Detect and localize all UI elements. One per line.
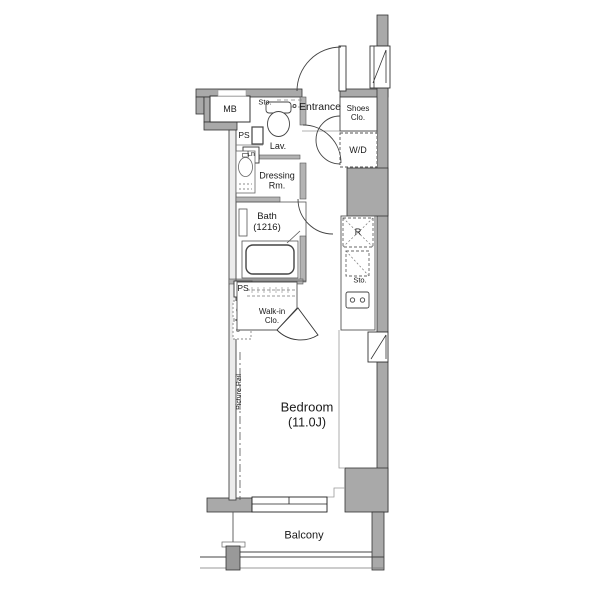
label-ln: Ln (247, 151, 255, 159)
label-sto-top: Sto. (258, 99, 271, 108)
shoes-closet-door-arc-upper (316, 116, 340, 140)
label-dressing-room: Dressing Rm. (259, 171, 295, 192)
toilet-bowl (268, 112, 290, 137)
label-shoes-line1: Shoes (347, 104, 370, 113)
partition-dressing-bath (236, 197, 280, 202)
wall-right-top-stub (377, 15, 388, 46)
shoes-closet-door-arc-lower (316, 140, 340, 164)
label-mb: MB (223, 104, 237, 114)
label-fridge: R (355, 227, 362, 237)
toilet-flush-button (293, 105, 296, 108)
label-lav: Lav. (270, 141, 286, 151)
mb-vent (218, 90, 246, 96)
wall-chunk-bottom-right (345, 468, 388, 512)
wall-left-stub (196, 97, 204, 114)
floor-plan-drawing (0, 0, 600, 600)
ps-upper-box (252, 127, 263, 144)
label-shoes-closet: Shoes Clo. (347, 104, 370, 122)
wall-mb-niche-left (204, 97, 210, 122)
bath-shelf (239, 209, 247, 236)
label-picture-rail: Picture Rail (236, 374, 244, 410)
wall-mb-niche-bottom (204, 122, 237, 130)
label-shoes-line2: Clo. (347, 113, 370, 122)
partition-lav-dressing-b (259, 155, 300, 159)
bathtub-inner (246, 245, 294, 274)
label-balcony: Balcony (284, 530, 323, 543)
window-top-right (370, 46, 390, 88)
balcony-divider (226, 546, 240, 570)
label-bath: Bath (1216) (253, 212, 280, 234)
partition-hall-lav-c (300, 236, 306, 282)
washbasin-bowl (239, 158, 253, 177)
label-ps-lower: PS (237, 284, 248, 294)
label-wd: W/D (349, 145, 367, 155)
entrance-door-leaf (339, 46, 346, 91)
bedroom-window (252, 497, 327, 512)
label-bedroom: Bedroom (11.0J) (281, 400, 334, 429)
label-entrance: Entrance (299, 101, 341, 113)
label-dressing-line2: Rm. (259, 181, 295, 191)
label-sto-kitchen: Sto. (353, 277, 366, 286)
floor-plan: MB Sto. Entrance Shoes Clo. W/D PS Lav. … (0, 0, 600, 600)
label-ps-upper: PS (238, 131, 249, 141)
partition-hall-lav-b (300, 163, 306, 199)
dressing-door-arc (298, 199, 333, 234)
wall-chunk-below-wd (347, 168, 388, 216)
label-dressing-line1: Dressing (259, 171, 295, 181)
balcony-right-wall (372, 512, 384, 570)
label-bedroom-line1: Bedroom (281, 400, 334, 415)
label-bedroom-line2: (11.0J) (281, 415, 334, 429)
label-walkin-closet: Walk-in Clo. (259, 307, 285, 325)
label-walkin-line2: Clo. (259, 316, 285, 325)
entrance-door-arc (297, 47, 341, 91)
label-bath-line2: (1216) (253, 223, 280, 234)
label-walkin-line1: Walk-in (259, 307, 285, 316)
